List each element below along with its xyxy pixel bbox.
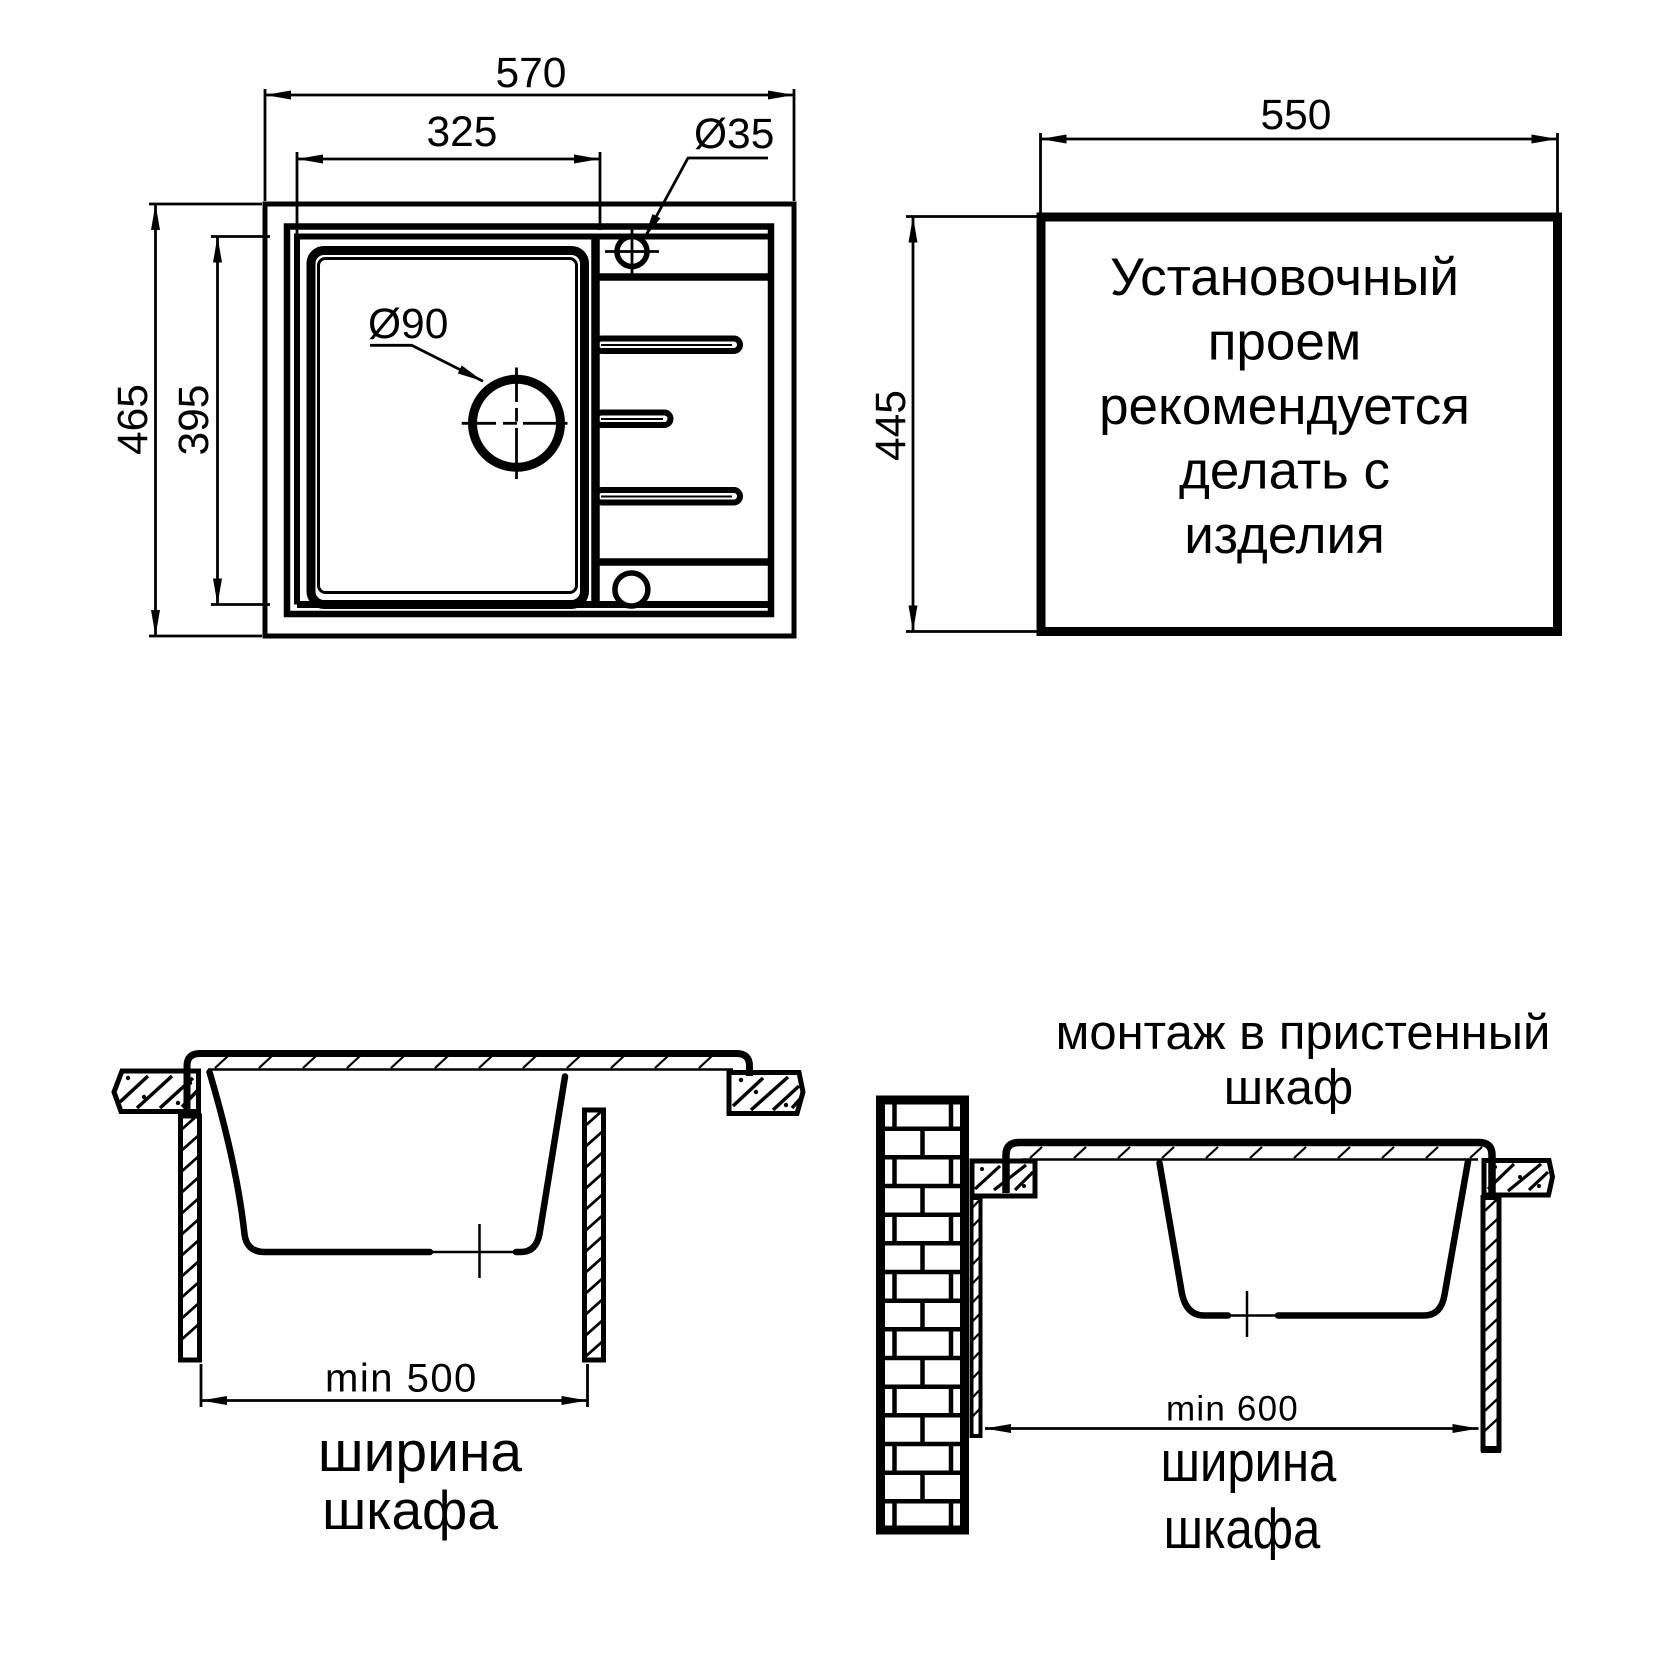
svg-text:550: 550 [1261, 92, 1332, 139]
svg-text:395: 395 [171, 385, 218, 456]
svg-text:Ø90: Ø90 [368, 301, 448, 348]
svg-text:min 500: min 500 [325, 1357, 478, 1401]
svg-text:изделия: изделия [1184, 506, 1385, 565]
svg-text:рекомендуется: рекомендуется [1099, 377, 1470, 436]
svg-text:делать с: делать с [1179, 442, 1390, 501]
svg-text:проем: проем [1208, 313, 1362, 372]
svg-text:570: 570 [496, 50, 567, 97]
svg-text:Ø35: Ø35 [694, 111, 774, 158]
svg-text:min 600: min 600 [1166, 1390, 1299, 1429]
svg-text:монтаж в пристенный: монтаж в пристенный [1056, 1006, 1551, 1060]
svg-text:ширина: ширина [1161, 1431, 1337, 1494]
svg-text:шкаф: шкаф [1224, 1061, 1353, 1115]
svg-text:шкафа: шкафа [322, 1479, 498, 1541]
svg-text:445: 445 [868, 390, 915, 461]
svg-text:325: 325 [427, 109, 498, 156]
svg-text:465: 465 [110, 384, 157, 455]
svg-text:шкафа: шкафа [1164, 1498, 1321, 1561]
svg-text:ширина: ширина [318, 1420, 523, 1484]
svg-text:Установочный: Установочный [1110, 248, 1459, 307]
